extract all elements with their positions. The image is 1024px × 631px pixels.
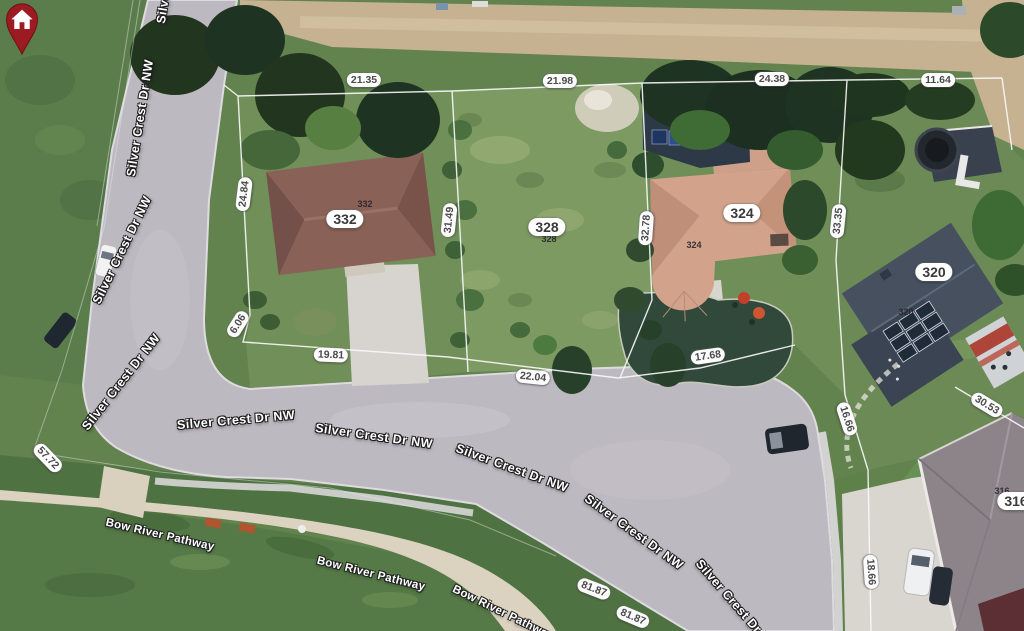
dimension-label: 21.98 (543, 74, 577, 88)
roof-number-label: 320 (898, 307, 913, 317)
patio-umbrella (738, 292, 750, 304)
house-number-badge: 324 (723, 204, 760, 222)
house-number-badge: 328 (528, 218, 565, 236)
trash-can (298, 525, 306, 533)
house-number-badge: 332 (326, 210, 363, 228)
dimension-label: 18.66 (863, 554, 879, 589)
driveway-332 (346, 264, 429, 386)
dimension-label: 19.81 (314, 347, 349, 362)
dimension-label: 32.78 (638, 210, 654, 245)
patio-umbrella (753, 307, 765, 319)
house-number-badge: 316 (997, 492, 1024, 510)
satellite-map[interactable]: Silver Crest Dr NWSilver Crest Dr NWSilv… (0, 0, 1024, 631)
property-pin[interactable] (0, 0, 44, 58)
house-number-badge: 320 (915, 263, 952, 281)
dimension-label: 24.38 (755, 72, 789, 86)
roof-number-label: 324 (686, 240, 701, 250)
dimension-label: 11.64 (921, 73, 955, 87)
dimension-label: 21.35 (347, 73, 381, 87)
pond-324 (618, 293, 792, 387)
roof-number-label: 332 (357, 199, 372, 209)
